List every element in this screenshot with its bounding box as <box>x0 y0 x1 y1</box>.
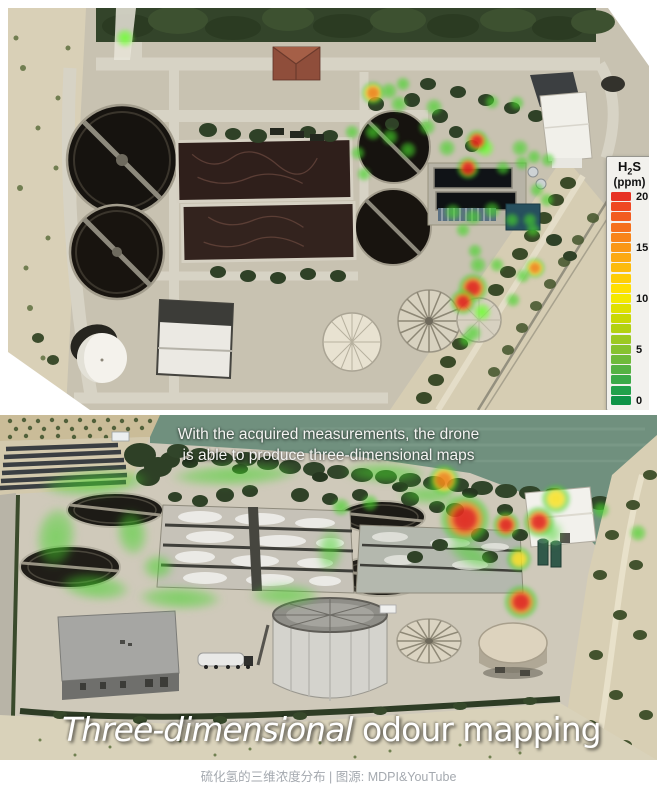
drying-bed-oblique <box>397 619 461 663</box>
legend-swatch <box>611 233 631 242</box>
legend-swatch <box>611 365 631 374</box>
legend-colorbar: 20151050 <box>611 192 649 405</box>
legend-swatch <box>611 192 631 201</box>
digester-dome <box>323 313 381 371</box>
legend-title: H2S <box>607 160 649 177</box>
video-title-italic: Three-dimensional <box>62 710 353 749</box>
legend-swatch <box>611 355 631 364</box>
legend-swatch <box>611 274 631 283</box>
legend-swatch <box>611 212 631 221</box>
drone-scene <box>0 415 657 760</box>
video-caption-line1: With the acquired measurements, the dron… <box>0 424 657 445</box>
h2s-legend: H2S (ppm) 20151050 <box>606 156 649 410</box>
video-caption: With the acquired measurements, the dron… <box>0 424 657 467</box>
legend-swatch <box>611 202 631 211</box>
red-roof-building <box>273 47 320 80</box>
legend-swatch <box>611 386 631 395</box>
legend-swatch <box>611 243 631 252</box>
video-caption-line2: is able to produce three-dimensional map… <box>0 445 657 466</box>
legend-swatch <box>611 375 631 384</box>
video-title: Three-dimensional odour mapping <box>62 710 601 749</box>
legend-swatch <box>611 223 631 232</box>
legend-unit: (ppm) <box>607 177 649 189</box>
legend-tick-label: 0 <box>636 395 642 407</box>
legend-swatch <box>611 304 631 313</box>
video-title-regular: odour mapping <box>353 710 601 749</box>
storage-tank <box>258 598 396 701</box>
drone-heatmap-photo: With the acquired measurements, the dron… <box>0 415 657 760</box>
legend-swatch <box>611 263 631 272</box>
figure-caption: 硫化氢的三维浓度分布 | 图源: MDPI&YouTube <box>0 766 657 785</box>
workshop-building <box>157 300 233 378</box>
legend-tick-label: 5 <box>636 344 642 356</box>
legend-swatch <box>611 345 631 354</box>
warehouse-building-oblique <box>525 487 596 547</box>
legend-swatch <box>611 253 631 262</box>
satellite-heatmap-photo: H2S (ppm) 20151050 <box>8 8 649 410</box>
legend-swatch <box>611 284 631 293</box>
legend-swatch <box>611 294 631 303</box>
legend-tick-label: 10 <box>636 293 648 305</box>
legend-swatch <box>611 335 631 344</box>
legend-swatch <box>611 396 631 405</box>
legend-tick-label: 20 <box>636 191 648 203</box>
legend-swatch <box>611 314 631 323</box>
legend-swatch <box>611 324 631 333</box>
gray-building <box>58 611 179 700</box>
aeration-basins <box>177 139 355 262</box>
legend-tick-label: 15 <box>636 242 648 254</box>
satellite-scene <box>8 8 649 410</box>
round-tank <box>479 623 547 679</box>
article-figure: H2S (ppm) 20151050 <box>0 0 657 793</box>
